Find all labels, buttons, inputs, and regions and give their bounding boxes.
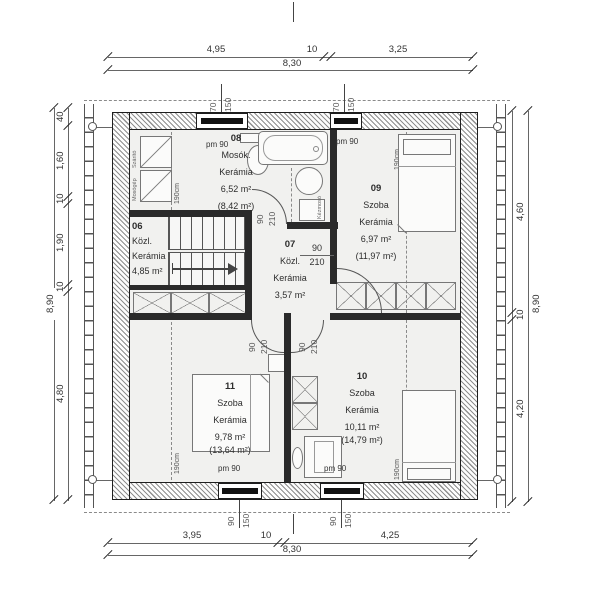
room-07-number: 07 xyxy=(252,236,328,253)
bed-09-pillow xyxy=(403,139,451,155)
room-11-gross-area: (13,64 m²) xyxy=(188,442,272,459)
basin xyxy=(295,167,323,195)
dim-right-seg3: 4,20 xyxy=(516,394,526,424)
wall-bath-bottom xyxy=(287,222,338,229)
window-callout-line xyxy=(344,84,345,112)
downpipe xyxy=(493,475,502,484)
room-08-number: 08 xyxy=(204,130,268,147)
door-11-width-label: 90 xyxy=(248,322,257,352)
floor-plan: 190cm 190cm 190cm 190cm Szárító Mosógép … xyxy=(0,0,600,592)
room-06-label: 06 Közl. Kerámia 4,85 m² xyxy=(132,219,178,279)
wardrobe-10-cell xyxy=(292,403,318,430)
dim-bottom-seg3: 4,25 xyxy=(360,530,420,541)
room-11-number: 11 xyxy=(188,378,272,395)
window-top-1-band xyxy=(201,118,243,124)
room-07-material: Kerámia xyxy=(252,270,328,287)
door-10-width-label: 90 xyxy=(298,322,307,352)
downpipe xyxy=(493,122,502,131)
parapet-label: pm 90 xyxy=(324,464,346,473)
dim-bottom-seg1: 3,95 xyxy=(162,530,222,541)
closet-cell xyxy=(171,292,209,314)
dryer xyxy=(140,136,172,168)
room-08-gross-area: (8,42 m²) xyxy=(204,198,268,215)
room-10-material: Kerámia xyxy=(322,402,402,419)
headroom-line xyxy=(171,322,172,480)
window-bottom-1-band xyxy=(222,488,258,494)
downpipe xyxy=(88,475,97,484)
exterior-wall-bottom xyxy=(112,482,478,500)
window-top-2-width-label: 70 xyxy=(332,88,341,112)
dim-top-seg2: 10 xyxy=(300,44,324,55)
dim-left-seg2: 1,60 xyxy=(56,146,66,176)
dim-left-seg1: 40 xyxy=(56,106,66,128)
wardrobe-10-cell xyxy=(292,376,318,403)
washer-label: Mosógép xyxy=(133,173,139,201)
door-10-height-label: 210 xyxy=(310,320,319,354)
window-bottom-1-width-label: 90 xyxy=(227,502,236,526)
stairs-direction-arrow xyxy=(173,268,229,270)
dim-line-right-total xyxy=(528,111,529,502)
gutter-left xyxy=(84,104,94,508)
bed-10-pillow xyxy=(407,468,451,480)
room-06-name: Közl. xyxy=(132,234,178,249)
dim-left-seg5: 10 xyxy=(56,272,66,302)
bed-09-blanket-line xyxy=(398,166,456,167)
dim-left-total: 8,90 xyxy=(46,288,56,320)
exterior-wall-top xyxy=(112,112,478,130)
dryer-label: Szárító xyxy=(133,140,139,168)
room-08-label: 08 Mosók. Kerámia 6,52 m² (8,42 m²) xyxy=(204,130,268,215)
eaves-line-top xyxy=(84,100,510,101)
room-10-number: 10 xyxy=(322,368,402,385)
bed-10-blanket-line xyxy=(402,462,456,463)
room-11-material: Kerámia xyxy=(188,412,272,429)
stairs-arrow-head xyxy=(228,263,238,275)
window-callout-line xyxy=(239,500,240,528)
wardrobe-09-cell xyxy=(396,282,426,310)
dim-line-top-total xyxy=(108,70,473,71)
dim-bottom-seg2: 10 xyxy=(254,530,278,541)
window-callout-line xyxy=(341,500,342,528)
door-08-height-label: 210 xyxy=(268,192,277,226)
window-bottom-1-height-label: 150 xyxy=(242,502,251,528)
room-09-material: Kerámia xyxy=(338,214,414,231)
downpipe-connector xyxy=(96,480,112,481)
window-top-1-height-label: 150 xyxy=(224,86,233,112)
dim-left-seg6: 4,80 xyxy=(56,379,66,409)
wardrobe-09-cell xyxy=(426,282,456,310)
dim-left-seg3: 10 xyxy=(56,190,66,208)
room-09-number: 09 xyxy=(338,180,414,197)
room-08-name: Mosók. xyxy=(204,147,268,164)
headroom-label: 190cm xyxy=(174,168,181,204)
room-10-name: Szoba xyxy=(322,385,402,402)
room-09-label: 09 Szoba Kerámia 6,97 m² (11,97 m²) xyxy=(338,180,414,265)
downpipe xyxy=(88,122,97,131)
window-top-2-height-label: 150 xyxy=(347,86,356,112)
dim-top-seg1: 4,95 xyxy=(186,44,246,55)
headroom-label: 190cm xyxy=(394,444,401,480)
room-08-area: 6,52 m² xyxy=(204,181,268,198)
wall-11-10-divider xyxy=(284,313,291,482)
room-09-gross-area: (11,97 m²) xyxy=(338,248,414,265)
window-bottom-2-band xyxy=(324,488,360,494)
room-07-name: Közl. xyxy=(252,253,328,270)
stairs-upper-flight xyxy=(168,212,245,250)
window-top-2-band xyxy=(334,118,358,124)
dim-bottom-total: 8,30 xyxy=(272,544,312,555)
washstand-label: Kézmosó xyxy=(318,201,324,219)
room-06-number: 06 xyxy=(132,219,178,234)
dim-right-seg2: 10 xyxy=(516,306,526,324)
wall-stairs-right xyxy=(245,210,252,315)
dim-left-seg4: 1,90 xyxy=(56,228,66,258)
exterior-wall-left xyxy=(112,112,130,500)
dim-right-seg1: 4,60 xyxy=(516,197,526,227)
parapet-label: pm 90 xyxy=(218,464,240,473)
bathtub-drain xyxy=(313,146,319,152)
room-10-label: 10 Szoba Kerámia 10,11 m² (14,79 m²) xyxy=(322,368,402,449)
wall-stairs-bottom xyxy=(130,285,252,290)
room-11-label: 11 Szoba Kerámia 9,78 m² (13,64 m²) xyxy=(188,378,272,459)
washing-machine xyxy=(140,170,172,202)
closet-cell xyxy=(209,292,247,314)
room-09-area: 6,97 m² xyxy=(338,231,414,248)
downpipe-connector xyxy=(96,127,112,128)
dim-top-seg3: 3,25 xyxy=(368,44,428,55)
room-11-name: Szoba xyxy=(188,395,272,412)
axis-mark-top xyxy=(293,2,294,22)
dim-right-total: 8,90 xyxy=(532,288,542,320)
dim-line-right-segments xyxy=(512,111,513,502)
dim-line-left-segments xyxy=(68,108,69,501)
dim-line-bottom-total xyxy=(108,555,473,556)
bath-partition-line xyxy=(291,168,292,222)
eaves-line-bottom xyxy=(84,512,510,513)
window-bottom-2-width-label: 90 xyxy=(329,502,338,526)
wall-10-top xyxy=(330,313,460,320)
room-06-material: Kerámia xyxy=(132,249,178,264)
room-10-gross-area: (14,79 m²) xyxy=(322,432,402,449)
window-top-1-width-label: 70 xyxy=(209,88,218,112)
closet-cell xyxy=(133,292,171,314)
exterior-wall-right xyxy=(460,112,478,500)
window-callout-line xyxy=(221,84,222,112)
parapet-label: pm 90 xyxy=(336,137,358,146)
room-06-area: 4,85 m² xyxy=(132,264,178,279)
gutter-right xyxy=(496,104,506,508)
door-11-height-label: 210 xyxy=(260,320,269,354)
wall-11-top xyxy=(130,313,252,320)
headroom-label: 190cm xyxy=(174,438,181,474)
room-09-name: Szoba xyxy=(338,197,414,214)
axis-mark-bottom xyxy=(293,514,294,534)
room-07-label: 07 Közl. Kerámia 3,57 m² xyxy=(252,236,328,304)
room-08-material: Kerámia xyxy=(204,164,268,181)
dim-top-total: 8,30 xyxy=(272,58,312,69)
chair-10 xyxy=(292,447,303,469)
room-07-area: 3,57 m² xyxy=(252,287,328,304)
window-bottom-2-height-label: 150 xyxy=(344,502,353,528)
